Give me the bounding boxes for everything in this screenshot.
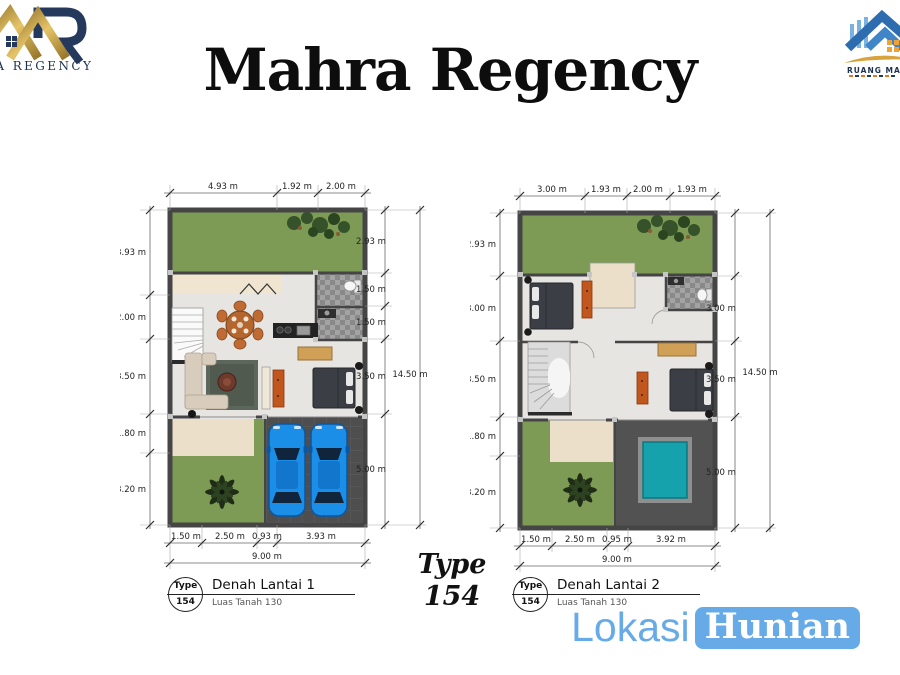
badge-type-word: Type <box>512 581 549 591</box>
balcony <box>590 263 635 308</box>
dim-label: 1.50 m <box>521 535 551 545</box>
living-room <box>185 353 258 418</box>
dim-label: 1.50 m <box>171 532 201 542</box>
cabinet <box>273 370 284 407</box>
dim-label: 3.93 m <box>120 248 146 258</box>
house-icon <box>844 16 900 63</box>
dim-label: 1.50 m <box>356 318 386 328</box>
stairs <box>528 342 572 416</box>
wood-shelf <box>658 343 696 356</box>
dim-label: 2.00 m <box>633 185 663 195</box>
dresser <box>582 281 592 318</box>
floor-plan-2: 3.00 m 1.93 m 2.00 m 1.93 m 2.93 m 3.00 … <box>470 165 800 585</box>
dim-label: 3.20 m <box>120 485 146 495</box>
dim-label: 0.95 m <box>602 535 632 545</box>
dim-label: 3.93 m <box>306 532 336 542</box>
badge-type-number: 154 <box>512 597 549 607</box>
dim-label: 2.50 m <box>215 532 245 542</box>
watermark-lokasi: Lokasi <box>571 604 690 651</box>
page-title: Mahra Regency <box>0 36 900 104</box>
dim-label: 0.93 m <box>252 532 282 542</box>
watermark-hunian: Hunian <box>695 607 860 649</box>
dim-label: 1.93 m <box>677 185 707 195</box>
dim-label: 3.50 m <box>356 372 386 382</box>
lokasihunian-watermark: Lokasi Hunian <box>571 604 860 651</box>
porch <box>172 273 282 294</box>
dim-label: 2.00 m <box>326 182 356 192</box>
plant-icon <box>188 410 196 418</box>
developer-logo: RUANG MA <box>840 2 900 82</box>
dim-label: 3.00 m <box>706 304 736 314</box>
developer-logo-text: RUANG MA <box>847 66 900 75</box>
dim-label: 5.00 m <box>356 465 386 475</box>
dim-label: 9.00 m <box>602 555 632 565</box>
toilet-icon <box>697 289 707 301</box>
floor-plan-1: 4.93 m 1.92 m 2.00 m 3.93 m 2.00 m 3.50 … <box>120 165 440 585</box>
dresser <box>637 372 648 404</box>
dim-label: 1.50 m <box>356 285 386 295</box>
terrace <box>172 419 254 456</box>
toilet-icon <box>344 281 356 291</box>
palm-tree-icon <box>205 475 239 509</box>
palm-tree-icon <box>563 473 597 507</box>
dim-label: 3.50 m <box>120 372 146 382</box>
car-icon <box>267 424 308 516</box>
dim-label: 14.50 m <box>392 370 427 380</box>
type-154-label: Type 154 <box>400 549 504 613</box>
wood-cabinet <box>298 347 332 360</box>
dim-label: 1.80 m <box>120 429 146 439</box>
dim-label: 9.00 m <box>252 552 282 562</box>
floor-plan-1-drawing <box>168 210 367 525</box>
dim-label: 1.93 m <box>591 185 621 195</box>
dim-label: 1.80 m <box>470 432 496 442</box>
dim-label: 1.92 m <box>282 182 312 192</box>
plan-title: Denah Lantai 2 <box>557 577 660 593</box>
dim-label: 14.50 m <box>742 368 777 378</box>
type-word: Type <box>400 549 504 581</box>
car-icon <box>309 424 350 516</box>
swimming-pool <box>643 442 687 498</box>
badge-type-number: 154 <box>167 597 204 607</box>
badge-type-word: Type <box>167 581 204 591</box>
plan-subtitle: Luas Tanah 130 <box>212 598 282 608</box>
dim-label: 3.50 m <box>706 375 736 385</box>
plan1-badge: Type 154 Denah Lantai 1 Luas Tanah 130 <box>167 577 355 617</box>
dim-label: 2.93 m <box>356 237 386 247</box>
dim-label: 2.50 m <box>565 535 595 545</box>
dim-label: 4.93 m <box>208 182 238 192</box>
kitchen-counter <box>273 323 318 338</box>
terrace <box>550 420 613 462</box>
dim-label: 2.00 m <box>120 313 146 323</box>
type-number: 154 <box>400 581 504 613</box>
dim-label: 5.00 m <box>706 468 736 478</box>
dim-label: 3.00 m <box>470 304 496 314</box>
dim-label: 3.92 m <box>656 535 686 545</box>
logo-tagline-decor <box>849 75 895 77</box>
dim-label: 3.00 m <box>537 185 567 195</box>
dim-label: 2.93 m <box>470 240 496 250</box>
floor-plan-2-drawing <box>518 213 717 528</box>
divider-panel <box>262 367 270 409</box>
dim-label: 3.20 m <box>470 488 496 498</box>
dim-label: 3.50 m <box>470 375 496 385</box>
plan-title: Denah Lantai 1 <box>212 577 315 593</box>
